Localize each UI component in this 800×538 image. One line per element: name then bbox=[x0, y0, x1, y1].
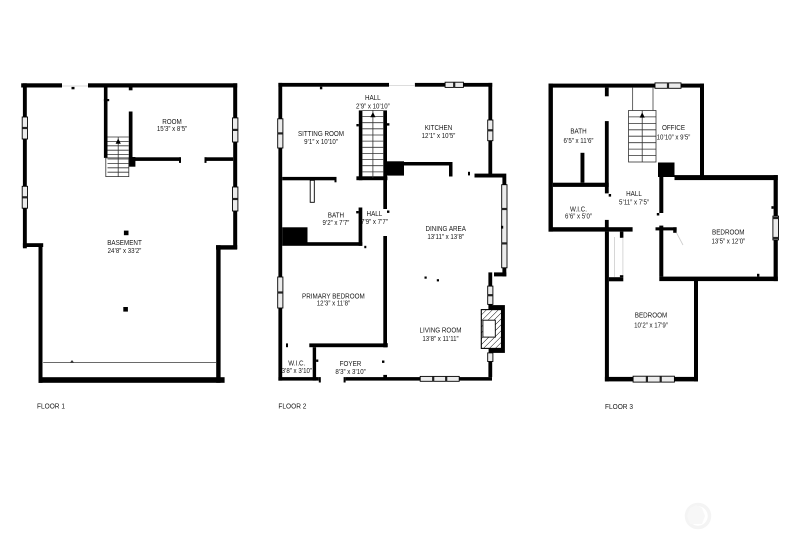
svg-text:HALL: HALL bbox=[626, 189, 642, 198]
svg-text:HALL: HALL bbox=[365, 93, 381, 102]
svg-text:15’3” x 8’5”: 15’3” x 8’5” bbox=[157, 126, 188, 133]
svg-text:8’3” x 3’10”: 8’3” x 3’10” bbox=[335, 369, 366, 376]
svg-text:ROOM: ROOM bbox=[162, 117, 182, 126]
svg-text:OFFICE: OFFICE bbox=[662, 123, 685, 132]
svg-text:BASEMENT: BASEMENT bbox=[107, 238, 142, 247]
svg-text:W.I.C.: W.I.C. bbox=[288, 358, 305, 367]
svg-text:13’5” x 12’0”: 13’5” x 12’0” bbox=[711, 239, 745, 246]
svg-text:12’3” x 11’8”: 12’3” x 11’8” bbox=[317, 301, 351, 308]
svg-text:5’11” x 7’5”: 5’11” x 7’5” bbox=[619, 200, 650, 207]
svg-text:LIVING ROOM: LIVING ROOM bbox=[420, 326, 462, 335]
svg-text:HALL: HALL bbox=[367, 209, 383, 218]
svg-text:6’5” x 11’6”: 6’5” x 11’6” bbox=[564, 138, 595, 145]
svg-text:10’2” x 17’9”: 10’2” x 17’9” bbox=[634, 323, 668, 330]
svg-text:BATH: BATH bbox=[328, 211, 344, 220]
svg-text:7’9” x 7’7”: 7’9” x 7’7” bbox=[361, 219, 389, 226]
svg-text:FLOOR 2: FLOOR 2 bbox=[278, 401, 306, 410]
svg-text:FOYER: FOYER bbox=[340, 359, 362, 368]
svg-text:9’1” x 10’10”: 9’1” x 10’10” bbox=[304, 139, 338, 146]
svg-text:13’11” x 13’8”: 13’11” x 13’8” bbox=[427, 234, 464, 241]
svg-text:9’2” x 7’7”: 9’2” x 7’7” bbox=[322, 220, 350, 227]
svg-text:FLOOR 1: FLOOR 1 bbox=[37, 401, 65, 410]
svg-text:24’8” x 33’2”: 24’8” x 33’2” bbox=[108, 248, 142, 255]
svg-text:SITTING ROOM: SITTING ROOM bbox=[298, 129, 344, 138]
svg-text:6’6” x 5’0”: 6’6” x 5’0” bbox=[565, 213, 593, 220]
svg-text:PRIMARY BEDROOM: PRIMARY BEDROOM bbox=[302, 292, 365, 301]
svg-text:12’1” x 10’5”: 12’1” x 10’5” bbox=[422, 133, 456, 140]
svg-text:W.I.C.: W.I.C. bbox=[570, 205, 587, 214]
svg-text:BEDROOM: BEDROOM bbox=[635, 310, 668, 319]
svg-text:10’10” x 9’5”: 10’10” x 9’5” bbox=[657, 134, 691, 141]
svg-text:2’9” x 10’10”: 2’9” x 10’10” bbox=[356, 104, 390, 111]
svg-text:BEDROOM: BEDROOM bbox=[712, 228, 745, 237]
svg-text:KITCHEN: KITCHEN bbox=[425, 123, 453, 132]
svg-text:DINING AREA: DINING AREA bbox=[425, 224, 466, 233]
svg-text:FLOOR 3: FLOOR 3 bbox=[605, 402, 633, 411]
svg-text:BATH: BATH bbox=[570, 126, 586, 135]
svg-text:13’8” x 11’11”: 13’8” x 11’11” bbox=[422, 336, 459, 343]
svg-text:3’8” x 3’10”: 3’8” x 3’10” bbox=[282, 368, 313, 375]
